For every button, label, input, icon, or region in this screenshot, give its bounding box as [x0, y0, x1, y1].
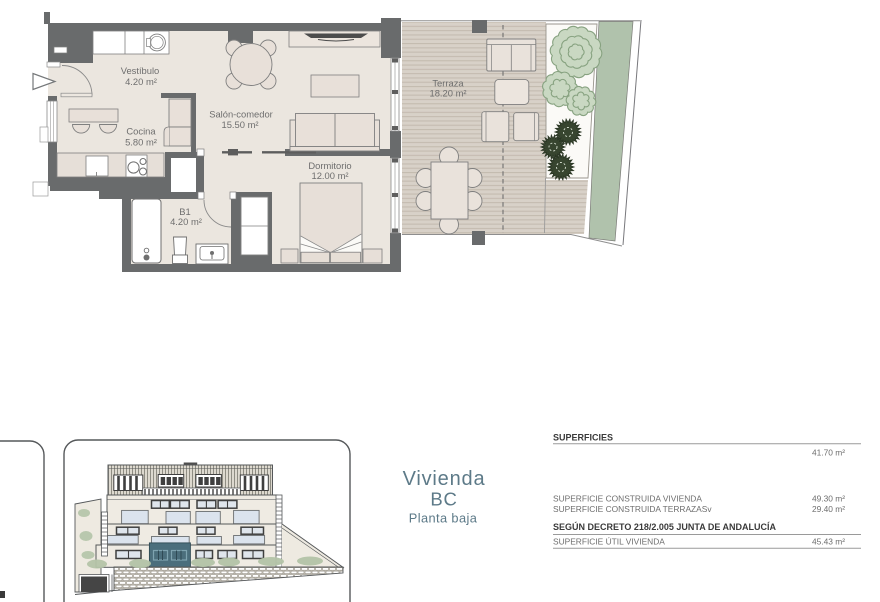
svg-text:SEGÚN DECRETO 218/2.005 JUNTA: SEGÚN DECRETO 218/2.005 JUNTA DE ANDALUC… [553, 521, 777, 532]
svg-text:15.50 m²: 15.50 m² [222, 119, 259, 130]
svg-text:SUPERFICIE CONSTRUIDA TERRAZAS: SUPERFICIE CONSTRUIDA TERRAZASv [553, 504, 712, 514]
svg-text:4.20 m²: 4.20 m² [170, 216, 202, 227]
svg-text:Planta baja: Planta baja [409, 511, 478, 526]
svg-text:Salón-comedor: Salón-comedor [209, 109, 273, 120]
svg-text:Vestíbulo: Vestíbulo [121, 65, 160, 76]
svg-text:Cocina: Cocina [126, 126, 156, 137]
svg-text:49.30 m²: 49.30 m² [812, 494, 845, 504]
svg-text:18.20 m²: 18.20 m² [430, 88, 467, 99]
svg-text:45.43 m²: 45.43 m² [812, 537, 845, 547]
svg-text:SUPERFICIES: SUPERFICIES [553, 433, 613, 443]
svg-text:41.70 m²: 41.70 m² [812, 448, 845, 458]
svg-text:5.80 m²: 5.80 m² [125, 137, 157, 148]
svg-text:SUPERFICIE ÚTIL VIVIENDA: SUPERFICIE ÚTIL VIVIENDA [553, 537, 665, 547]
svg-text:BC: BC [430, 489, 457, 510]
svg-text:Vivienda: Vivienda [403, 468, 486, 490]
svg-text:SUPERFICIE CONSTRUIDA VIVIENDA: SUPERFICIE CONSTRUIDA VIVIENDA [553, 494, 702, 504]
svg-text:12.00 m²: 12.00 m² [312, 170, 349, 181]
svg-text:4.20 m²: 4.20 m² [125, 76, 157, 87]
svg-text:29.40 m²: 29.40 m² [812, 504, 845, 514]
